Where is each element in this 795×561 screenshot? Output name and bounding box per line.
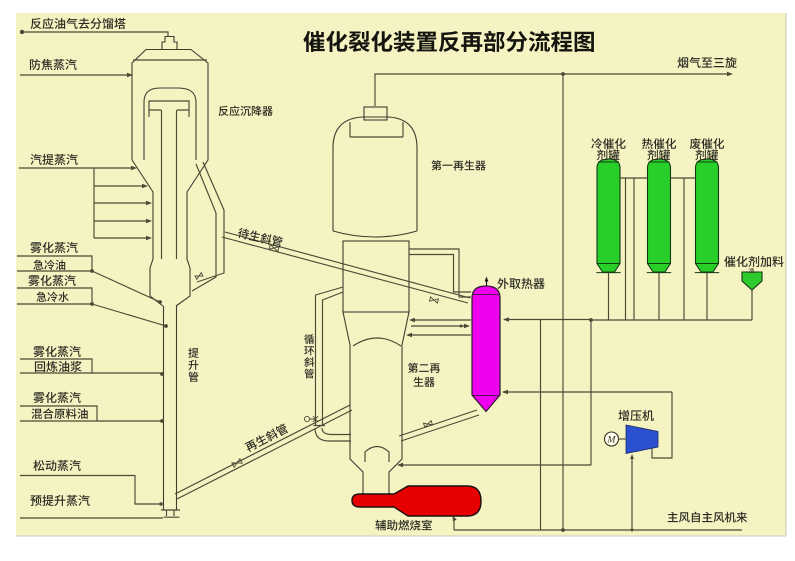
svg-text:M: M [607, 436, 617, 446]
svg-text:21: 21 [748, 268, 756, 275]
